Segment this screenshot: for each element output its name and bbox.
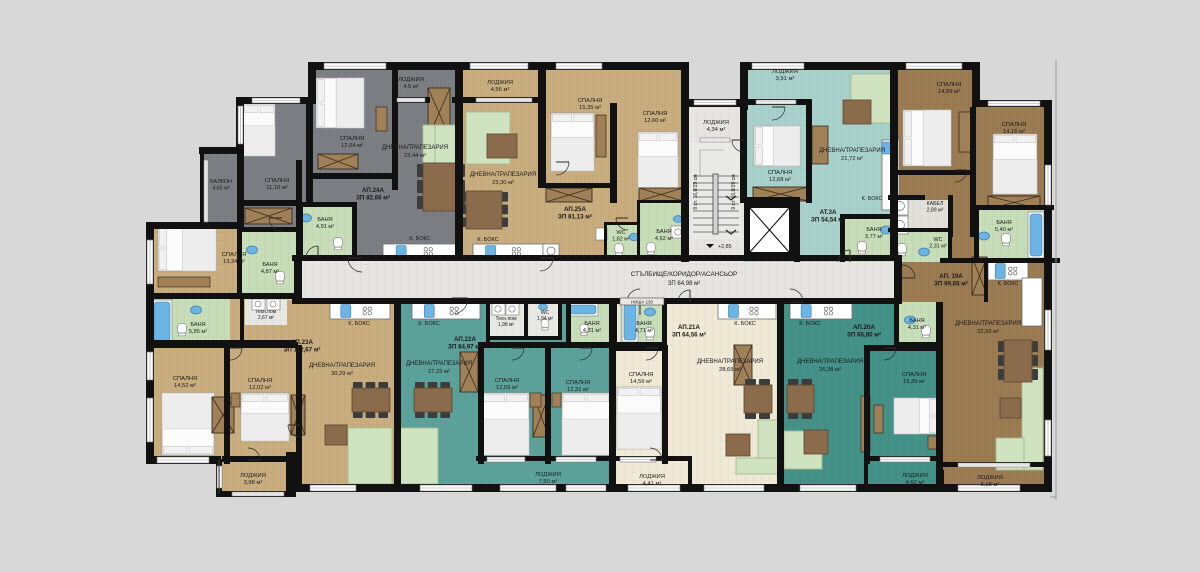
svg-text:АП. 19А: АП. 19А [939,273,963,280]
svg-text:АП.22А: АП.22А [454,336,476,343]
svg-text:12,02 м²: 12,02 м² [249,385,271,391]
svg-text:ЗП 84,97 м²: ЗП 84,97 м² [448,343,482,350]
svg-text:СПАЛНЯ: СПАЛНЯ [248,378,273,384]
svg-text:БАНЯ: БАНЯ [909,318,924,324]
svg-text:АП.23А: АП.23А [291,339,313,346]
svg-text:4,5 м²: 4,5 м² [403,84,419,90]
svg-text:БАНЯ: БАНЯ [656,229,671,235]
svg-text:12,59 м²: 12,59 м² [496,385,518,391]
svg-text:техн.пом: техн.пом [256,309,277,315]
svg-text:14,16 м²: 14,16 м² [1003,129,1025,135]
svg-text:4,31 м²: 4,31 м² [583,328,601,334]
svg-text:15,35 м²: 15,35 м² [579,105,601,111]
svg-text:К. БОКС: К. БОКС [998,281,1019,287]
svg-text:26,38 м²: 26,38 м² [819,367,841,373]
svg-text:2,89 м²: 2,89 м² [927,207,944,213]
svg-text:БАНЯ: БАНЯ [190,322,205,328]
svg-text:28,69 м²: 28,69 м² [719,367,741,373]
svg-text:23,44 м²: 23,44 м² [404,153,426,159]
svg-text:ДНЕВНА/ТРАПЕЗАРИЯ: ДНЕВНА/ТРАПЕЗАРИЯ [382,145,448,151]
svg-text:14,52 м²: 14,52 м² [174,383,196,389]
svg-text:ДНЕВНА/ТРАПЕЗАРИЯ: ДНЕВНА/ТРАПЕЗАРИЯ [819,148,885,154]
svg-text:4,34 м²: 4,34 м² [707,127,726,133]
svg-text:21,72 м²: 21,72 м² [841,156,863,162]
svg-text:ЗП 112,67 м²: ЗП 112,67 м² [284,346,321,353]
svg-text:14,59 м²: 14,59 м² [630,379,652,385]
svg-text:ЗП 82,66 м²: ЗП 82,66 м² [356,194,390,201]
svg-text:СПАЛНЯ: СПАЛНЯ [222,252,247,258]
svg-text:СТЪЛБИЩЕ/КОРИДОР/АСАНСЬОР: СТЪЛБИЩЕ/КОРИДОР/АСАНСЬОР [631,271,738,278]
svg-text:АТ.3А: АТ.3А [820,209,837,216]
svg-text:4,87 м²: 4,87 м² [261,269,279,275]
svg-text:WC: WC [934,237,943,243]
svg-text:3,91 м²: 3,91 м² [776,76,795,82]
svg-text:ДНЕВНА/ТРАПЕЗАРИЯ: ДНЕВНА/ТРАПЕЗАРИЯ [797,359,863,365]
svg-text:5,18 м²: 5,18 м² [981,482,1000,488]
svg-text:27,25 м²: 27,25 м² [428,369,450,375]
svg-text:ЗП 64,56 м²: ЗП 64,56 м² [672,331,706,338]
svg-text:НИША 130: НИША 130 [631,300,653,305]
svg-text:СПАЛНЯ: СПАЛНЯ [173,376,198,382]
svg-text:13,34 м²: 13,34 м² [223,259,245,265]
svg-text:СПАЛНЯ: СПАЛНЯ [340,136,365,142]
svg-text:СПАЛНЯ: СПАЛНЯ [768,170,793,176]
svg-text:СПАЛНЯ: СПАЛНЯ [643,111,668,117]
svg-text:2,31 м²: 2,31 м² [929,244,947,250]
svg-text:WC: WC [541,310,550,316]
svg-text:9 ст. 16,8/29 см: 9 ст. 16,8/29 см [731,174,737,210]
svg-text:ДНЕВНА/ТРАПЕЗАРИЯ: ДНЕВНА/ТРАПЕЗАРИЯ [406,361,472,367]
svg-text:ЛОДЖИЯ: ЛОДЖИЯ [772,69,798,75]
svg-text:СПАЛНЯ: СПАЛНЯ [1002,122,1027,128]
svg-text:12,60 м²: 12,60 м² [644,118,666,124]
svg-text:30,29 м²: 30,29 м² [331,371,353,377]
svg-text:К. БОКС: К. БОКС [799,321,821,327]
svg-text:СПАЛНЯ: СПАЛНЯ [495,378,520,384]
svg-text:К. БОКС: К. БОКС [862,196,883,202]
svg-text:ЗП 65,80 м²: ЗП 65,80 м² [847,331,881,338]
svg-text:СПАЛНЯ: СПАЛНЯ [566,380,591,386]
svg-text:АП.20А: АП.20А [853,324,875,331]
svg-text:5,85 м²: 5,85 м² [189,329,207,335]
svg-text:СПАЛНЯ: СПАЛНЯ [937,82,962,88]
svg-text:7,90 м²: 7,90 м² [539,479,558,485]
svg-text:Техн.пом: Техн.пом [495,316,517,322]
svg-text:ЛОДЖИЯ: ЛОДЖИЯ [639,474,665,480]
svg-text:БАНЯ: БАНЯ [636,321,651,327]
svg-text:ДНЕВНА/ТРАПЕЗАРИЯ: ДНЕВНА/ТРАПЕЗАРИЯ [955,321,1021,327]
svg-text:4,91 м²: 4,91 м² [316,224,334,230]
svg-text:2,67 м²: 2,67 м² [258,315,275,321]
svg-text:1,98 м²: 1,98 м² [498,322,515,328]
svg-text:К. БОКС: К. БОКС [734,321,756,327]
svg-text:СПАЛНЯ: СПАЛНЯ [629,372,654,378]
svg-text:4,62 м²: 4,62 м² [655,236,673,242]
svg-text:1,82 м²: 1,82 м² [612,237,630,243]
svg-text:ЛОДЖИЯ: ЛОДЖИЯ [535,472,561,478]
svg-text:БАЛКОН: БАЛКОН [210,179,232,185]
svg-text:5,40 м²: 5,40 м² [995,227,1013,233]
svg-text:4,56 м²: 4,56 м² [491,87,510,93]
svg-text:11,10 м²: 11,10 м² [266,185,288,191]
svg-text:3,98 м²: 3,98 м² [244,480,263,486]
svg-text:3,77 м²: 3,77 м² [865,234,883,240]
svg-text:СПАЛНЯ: СПАЛНЯ [265,178,290,184]
svg-text:АП.21А: АП.21А [678,324,700,331]
svg-text:БАНЯ: БАНЯ [996,220,1011,226]
svg-text:СПАЛНЯ: СПАЛНЯ [902,372,927,378]
svg-text:К. БОКС: К. БОКС [418,321,440,327]
svg-text:12,31 м²: 12,31 м² [567,387,589,393]
svg-text:К. БОКС: К. БОКС [477,237,499,243]
svg-text:1,94 м²: 1,94 м² [537,316,554,322]
svg-text:ЗП 99,65 м²: ЗП 99,65 м² [934,280,968,287]
svg-text:АП.24А: АП.24А [362,187,384,194]
svg-text:СПАЛНЯ: СПАЛНЯ [578,98,603,104]
svg-text:ЛОДЖИЯ: ЛОДЖИЯ [902,473,928,479]
svg-text:БАНЯ: БАНЯ [317,217,332,223]
svg-text:ЗП 81,13 м²: ЗП 81,13 м² [558,213,592,220]
svg-text:14,89 м²: 14,89 м² [938,89,960,95]
svg-text:12,04 м²: 12,04 м² [341,143,363,149]
svg-text:ЗП 54,54 м²: ЗП 54,54 м² [811,216,845,223]
svg-text:+2,85: +2,85 [718,244,732,250]
svg-text:БАНЯ: БАНЯ [866,227,881,233]
svg-text:12,68 м²: 12,68 м² [769,177,791,183]
svg-text:АП.25А: АП.25А [564,206,586,213]
svg-text:БАНЯ: БАНЯ [584,321,599,327]
svg-text:ЛОДЖИЯ: ЛОДЖИЯ [487,80,513,86]
svg-text:4,62 м²: 4,62 м² [906,480,925,486]
svg-text:4,31 м²: 4,31 м² [908,325,926,331]
svg-text:15,39 м²: 15,39 м² [903,379,925,385]
svg-text:23,30 м²: 23,30 м² [492,180,514,186]
svg-text:К. БОКС: К. БОКС [348,321,370,327]
svg-text:ЛОДЖИЯ: ЛОДЖИЯ [977,475,1003,481]
svg-text:32,93 м²: 32,93 м² [977,329,999,335]
svg-text:КАБЕЛ: КАБЕЛ [927,201,944,207]
svg-text:ЛОДЖИЯ: ЛОДЖИЯ [703,120,729,126]
svg-text:8 ст. 16,8/29 см: 8 ст. 16,8/29 см [693,174,699,210]
svg-text:ДНЕВНА/ТРАПЕЗАРИЯ: ДНЕВНА/ТРАПЕЗАРИЯ [470,172,536,178]
svg-text:ЛОДЖИЯ: ЛОДЖИЯ [398,77,424,83]
svg-text:4,65 м²: 4,65 м² [212,186,230,192]
svg-text:ДНЕВНА/ТРАПЕЗАРИЯ: ДНЕВНА/ТРАПЕЗАРИЯ [697,359,763,365]
svg-text:WC: WC [617,230,626,236]
svg-text:4,41 м²: 4,41 м² [643,481,662,487]
svg-text:ДНЕВНА/ТРАПЕЗАРИЯ: ДНЕВНА/ТРАПЕЗАРИЯ [309,363,375,369]
svg-text:4,71 м²: 4,71 м² [635,328,653,334]
svg-text:БАНЯ: БАНЯ [262,262,277,268]
svg-text:ЗП 64,98 м²: ЗП 64,98 м² [668,281,700,287]
svg-text:К. БОКС: К. БОКС [409,236,431,242]
svg-text:ЛОДЖИЯ: ЛОДЖИЯ [240,473,266,479]
